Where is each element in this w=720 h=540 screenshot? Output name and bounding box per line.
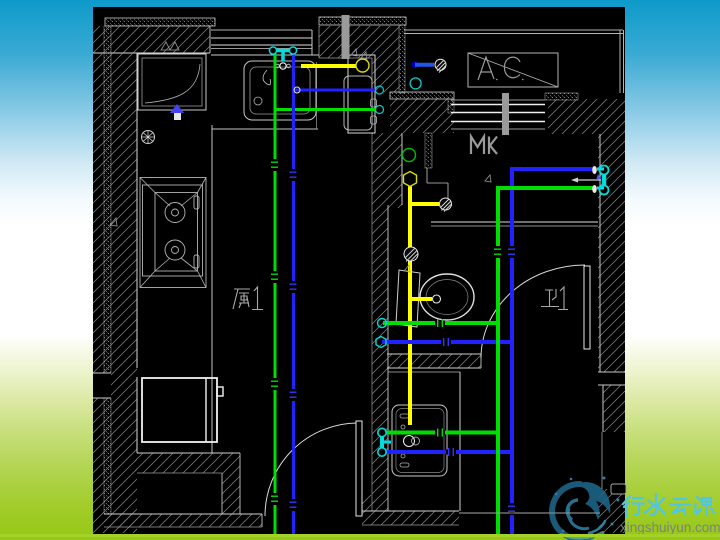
svg-text:xingshuiyun.com: xingshuiyun.com [620, 520, 720, 535]
